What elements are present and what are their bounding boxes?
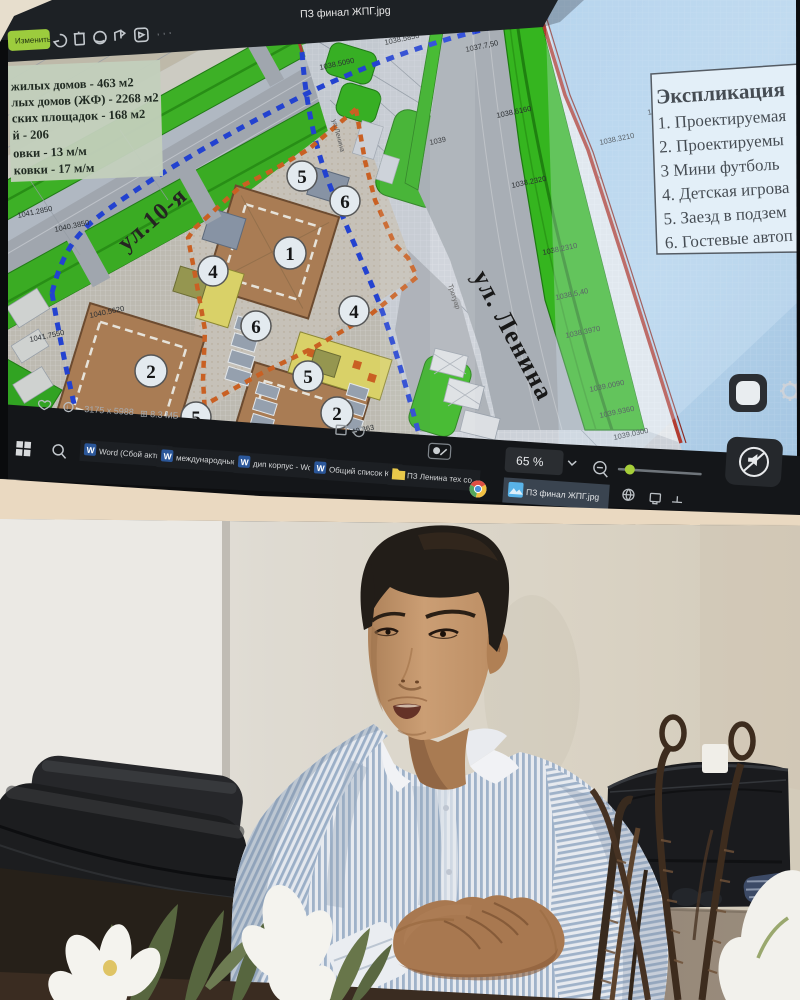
svg-text:65 %: 65 % [516,454,544,470]
svg-text:Изменить: Изменить [15,35,52,46]
